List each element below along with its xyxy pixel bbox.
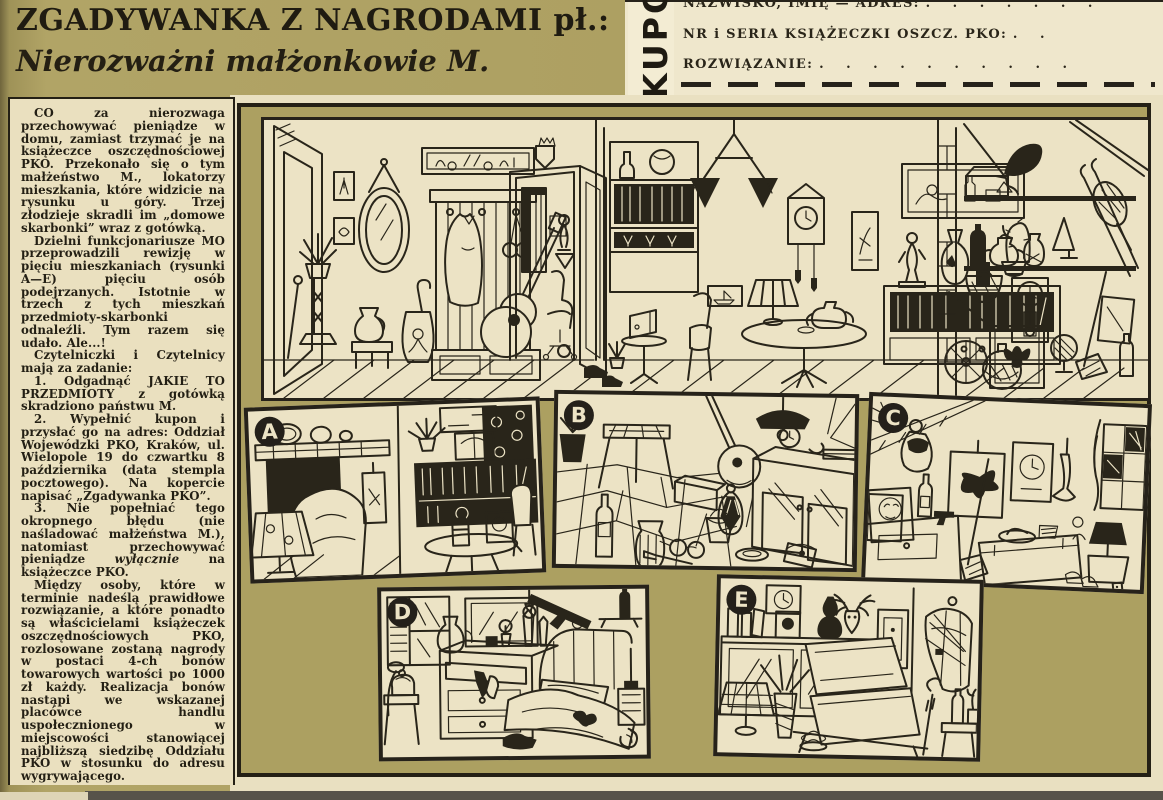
panel-suspect-b: B — [552, 390, 859, 572]
trumpet — [1053, 438, 1078, 501]
article-paragraph: 1. Odgadnąć JAKIE TO PRZEDMIOTY z gotówk… — [21, 375, 225, 413]
table-lamp — [718, 682, 775, 735]
framed-photo — [776, 611, 801, 637]
bed — [504, 629, 638, 750]
panel-suspect-a: A — [244, 396, 547, 583]
tennis-racket — [1087, 177, 1133, 250]
hall-floor — [264, 360, 594, 398]
door-pennant — [536, 138, 555, 168]
night-stand — [1087, 522, 1130, 584]
oval-mirror — [359, 159, 409, 272]
scan-bottom-edge — [85, 791, 1163, 800]
wall-statuette — [556, 215, 574, 268]
panel-suspect-d: D — [377, 585, 651, 762]
coupon-field-passbook-number: NR i SERIA KSIĄŻECZKI OSZCZ. PKO: . . — [683, 27, 1044, 42]
walking-cane — [288, 276, 302, 358]
page-title: ZGADYWANKA Z NAGRODAMI pł.: — [16, 0, 616, 42]
panel-suspect-e: E — [713, 574, 984, 762]
plant-vase — [760, 655, 810, 738]
open-suitcase — [803, 636, 921, 746]
wheel — [945, 341, 987, 383]
coupon-field-solution-dots: . . . . . . . . . . — [819, 57, 1067, 72]
eyeglasses — [660, 539, 704, 558]
window — [1092, 420, 1147, 512]
bottle — [918, 474, 933, 517]
round-table — [742, 280, 866, 387]
glass-cabinet — [752, 447, 855, 566]
window-corner — [827, 398, 855, 448]
dice — [1112, 582, 1123, 590]
coupon-field-solution: ROZWIĄZANIE: . . . . . . . . . . — [683, 57, 1067, 72]
kitchen-stool — [384, 662, 419, 744]
article-paragraph: Czytelniczki i Czytelnicy mają za zadani… — [21, 349, 225, 375]
coupon-field-passbook-number-dots: . . — [1013, 27, 1045, 42]
panel-suspect-c: C — [861, 392, 1152, 594]
hanging-lamp — [690, 120, 778, 208]
coupon-field-solution-label: ROZWIĄZANIE: — [683, 57, 813, 72]
plant-pedestal — [300, 234, 336, 344]
clock-picture — [1011, 442, 1053, 502]
room-b-drawing — [556, 394, 855, 568]
wall-corner — [911, 588, 913, 702]
coupon-field-passbook-number-label: NR i SERIA KSIĄŻECZKI OSZCZ. PKO: — [683, 27, 1007, 42]
panel-main-apartment — [261, 117, 1151, 401]
corner-bookcase — [610, 142, 698, 292]
umbrella — [923, 678, 941, 755]
statuette — [899, 233, 925, 287]
illustration-frame: A — [237, 103, 1151, 777]
hanging-lamp — [756, 397, 811, 441]
apartment-drawing — [264, 120, 1148, 398]
room-a-drawing — [248, 401, 542, 580]
handbag — [784, 543, 816, 567]
narrow-picture — [852, 212, 878, 270]
article-column: CO za nierozwaga przechowywać pieniądze … — [8, 97, 235, 785]
coupon-vertical-label: KUPON — [636, 0, 675, 99]
cuckoo-clock — [788, 184, 824, 292]
coupon-field-name-address-dots: . . . . . . . — [926, 0, 1093, 11]
coupon-field-name-address: NAZWISKO, IMIĘ — ADRES: . . . . . . . — [683, 0, 1092, 11]
stool-with-jug — [352, 308, 392, 368]
page-subtitle: Nierozważni małżonkowie M. — [16, 42, 616, 80]
panel-d-label: D — [387, 597, 417, 627]
umbrella-stand — [402, 280, 433, 362]
wall-clock — [766, 585, 801, 614]
spear — [964, 124, 1008, 188]
dresser — [865, 512, 964, 582]
coupon-dashed-rule — [681, 82, 1155, 87]
headline-block: ZGADYWANKA Z NAGRODAMI pł.: Nierozważni … — [16, 0, 616, 80]
coupon-field-name-address-label: NAZWISKO, IMIĘ — ADRES: — [683, 0, 920, 11]
side-table — [941, 689, 978, 757]
stool — [599, 425, 674, 489]
hall-picture-pair — [334, 172, 354, 244]
coupon-vertical-strip: KUPON — [628, 2, 674, 97]
dish — [736, 548, 768, 560]
urn-vase — [636, 521, 665, 568]
broom — [1076, 272, 1107, 379]
mantel-items — [779, 425, 855, 459]
article-paragraph: 3. Nie popełniać tego okropnego błędu (n… — [21, 502, 225, 579]
coat-on-hook — [924, 597, 972, 692]
room-c-drawing — [865, 396, 1148, 590]
room-d-drawing — [381, 589, 647, 758]
dark-bottle — [817, 596, 843, 639]
bottle — [596, 494, 613, 556]
article-paragraph: Między osoby, które w terminie nadeślą p… — [21, 579, 225, 783]
trunk — [977, 523, 1084, 589]
article-paragraph: CO za nierozwaga przechowywać pieniądze … — [21, 107, 225, 235]
wall-shelf — [599, 589, 641, 627]
name-plate — [422, 148, 534, 174]
scan-bottom-left-paper — [0, 792, 88, 800]
scanned-magazine-page: ZGADYWANKA Z NAGRODAMI pł.: Nierozważni … — [0, 0, 1163, 800]
article-paragraph: 2. Wypełnić kupon i przysłać go na adres… — [21, 413, 225, 502]
boat-picture — [708, 286, 742, 306]
room-e-drawing — [717, 578, 980, 757]
moth-picture — [948, 440, 1005, 518]
globe-lamp — [1051, 335, 1077, 372]
wall-corner — [394, 406, 404, 574]
entry-coupon: KUPON NAZWISKO, IMIĘ — ADRES: . . . . . … — [625, 0, 1163, 95]
article-paragraph: Dzielni funkcjonariusze MO przeprowadzil… — [21, 235, 225, 350]
